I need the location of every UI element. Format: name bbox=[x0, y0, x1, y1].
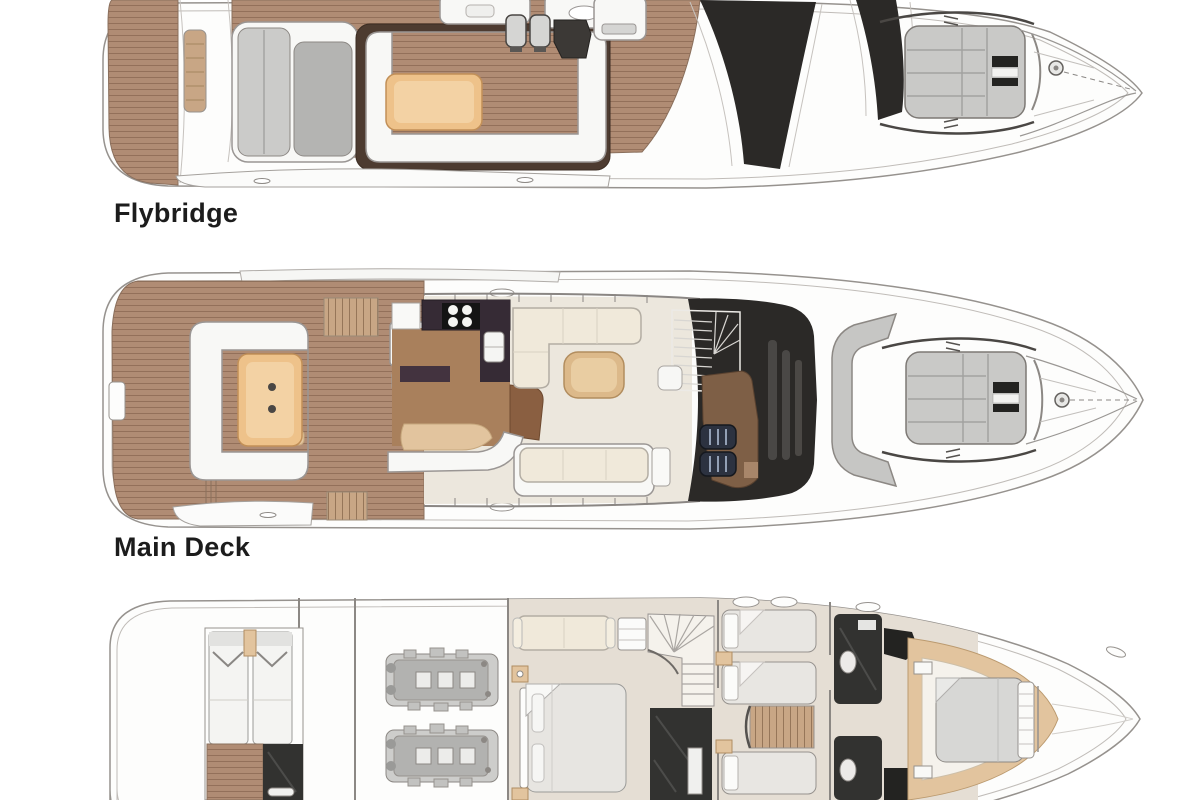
main-deck-plan: Main Deck bbox=[103, 269, 1143, 562]
cockpit-table-top bbox=[246, 362, 294, 438]
vanity-seat bbox=[884, 768, 910, 800]
stair-landing-seat bbox=[658, 366, 682, 390]
coffee-table-top bbox=[571, 358, 617, 392]
pillow bbox=[724, 756, 738, 790]
deck-hatch bbox=[733, 597, 759, 607]
toilet bbox=[840, 651, 856, 673]
burner bbox=[448, 317, 458, 327]
flybridge-bow-sun-pad bbox=[905, 26, 1025, 118]
galley-worktop-inset bbox=[400, 366, 450, 382]
table-inlay bbox=[268, 405, 276, 413]
helm-seat bbox=[506, 15, 526, 47]
deck-hatch bbox=[856, 603, 880, 612]
flybridge-sun-lounger bbox=[232, 22, 358, 162]
helm-seat bbox=[530, 15, 550, 47]
crew-cabin-floor bbox=[207, 744, 263, 800]
deck-hatch bbox=[1105, 645, 1127, 659]
helm-console bbox=[554, 20, 591, 58]
glass-reflection bbox=[768, 340, 777, 460]
pillow bbox=[532, 744, 544, 782]
nightstand bbox=[716, 740, 732, 753]
deck-hatch bbox=[771, 597, 797, 607]
pillow bbox=[532, 694, 544, 732]
burner bbox=[448, 305, 458, 315]
burner bbox=[462, 305, 472, 315]
bar-counter bbox=[510, 385, 543, 440]
pillow bbox=[724, 666, 738, 700]
companionway-steps bbox=[750, 706, 814, 748]
sideboard bbox=[652, 448, 670, 486]
vip-headboard bbox=[1018, 682, 1034, 758]
flybridge-label: Flybridge bbox=[114, 198, 238, 228]
side-table bbox=[914, 662, 932, 674]
transom-gate bbox=[109, 382, 125, 420]
engine-starboard bbox=[386, 724, 498, 787]
cabinet bbox=[618, 618, 646, 650]
nightstand bbox=[512, 788, 528, 800]
glass-reflection bbox=[782, 350, 790, 460]
cleat bbox=[254, 179, 270, 184]
deck-plans-canvas: Flybridge bbox=[0, 0, 1200, 800]
yacht-deck-plans-figure: Flybridge bbox=[0, 0, 1200, 800]
glass-reflection bbox=[795, 360, 802, 456]
engine-port bbox=[386, 648, 498, 711]
anchor-windlass bbox=[1049, 61, 1063, 75]
ensuite-fixture bbox=[688, 748, 702, 794]
pillow bbox=[724, 614, 738, 648]
main-deck-label: Main Deck bbox=[114, 532, 251, 562]
burner bbox=[462, 317, 472, 327]
crew-cabin bbox=[205, 628, 303, 800]
galley-cabinet bbox=[392, 303, 420, 329]
cleat bbox=[517, 178, 533, 183]
guest-cabins bbox=[716, 610, 816, 794]
crew-berth bbox=[253, 632, 292, 744]
stern-platform-strip bbox=[173, 501, 313, 526]
flybridge-table-top bbox=[394, 81, 474, 123]
toilet bbox=[840, 759, 856, 781]
sink bbox=[858, 620, 876, 630]
console-step bbox=[744, 462, 758, 478]
main-bow-sun-pad bbox=[906, 352, 1026, 444]
flybridge-deck-plan: Flybridge bbox=[103, 0, 1142, 228]
side-table bbox=[914, 766, 932, 778]
nightstand bbox=[716, 652, 732, 665]
crew-berth bbox=[209, 632, 248, 744]
cleat bbox=[260, 513, 276, 518]
anchor-windlass bbox=[1055, 393, 1069, 407]
flybridge-aft-teak-platform bbox=[108, 0, 178, 185]
side-deck-steps bbox=[327, 492, 367, 520]
crew-head-fixture bbox=[268, 788, 294, 796]
aft-curved-seat-cushion bbox=[401, 424, 492, 450]
table-inlay bbox=[268, 383, 276, 391]
lower-deck-plan bbox=[110, 596, 1140, 800]
vip-double-bed bbox=[936, 678, 1024, 762]
side-deck-steps bbox=[324, 298, 378, 336]
stove bbox=[442, 303, 480, 329]
cockpit-settee bbox=[190, 322, 308, 480]
saloon-aft-sofa-cushion bbox=[520, 448, 648, 482]
berth-ladder bbox=[244, 630, 256, 656]
